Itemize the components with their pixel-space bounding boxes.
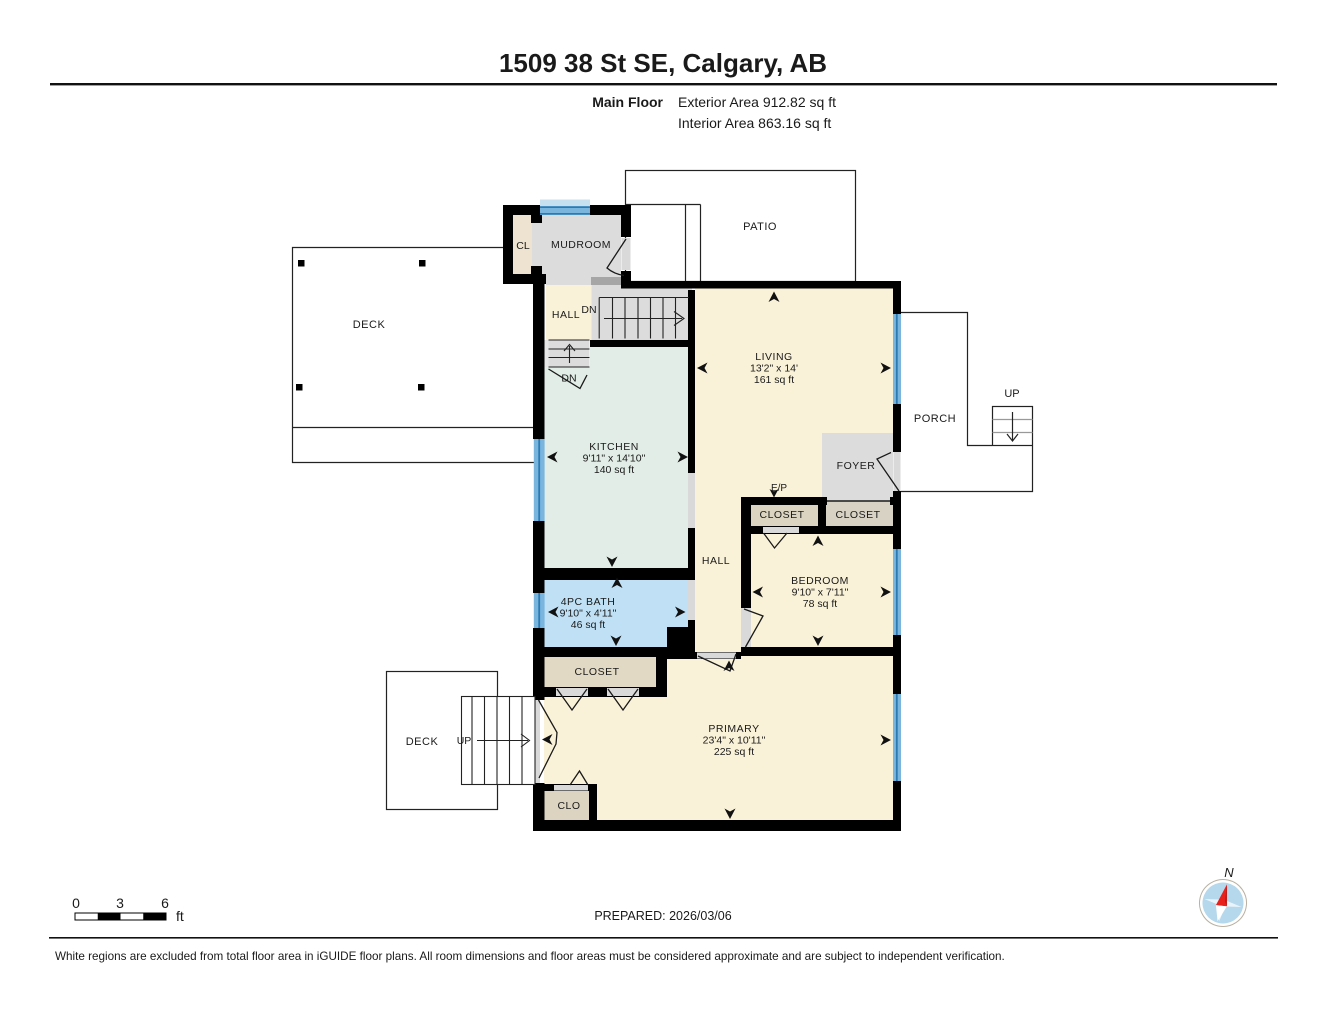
svg-text:140 sq ft: 140 sq ft (594, 464, 634, 476)
svg-text:FOYER: FOYER (837, 460, 876, 472)
svg-text:ft: ft (176, 908, 184, 924)
svg-text:DECK: DECK (353, 319, 386, 331)
svg-text:PRIMARY: PRIMARY (708, 723, 759, 735)
svg-text:Exterior Area 912.82 sq ft: Exterior Area 912.82 sq ft (678, 94, 836, 110)
svg-text:HALL: HALL (552, 309, 580, 321)
svg-text:Interior Area 863.16 sq ft: Interior Area 863.16 sq ft (678, 115, 831, 131)
svg-text:N: N (1224, 865, 1234, 880)
svg-text:LIVING: LIVING (755, 351, 792, 363)
svg-text:MUDROOM: MUDROOM (551, 239, 611, 251)
svg-text:CLO: CLO (557, 800, 580, 812)
svg-text:DECK: DECK (406, 736, 439, 748)
svg-text:PORCH: PORCH (914, 413, 956, 425)
svg-text:4PC BATH: 4PC BATH (561, 596, 616, 608)
svg-text:225 sq ft: 225 sq ft (714, 746, 754, 758)
svg-text:46 sq ft: 46 sq ft (571, 619, 606, 631)
svg-text:6: 6 (161, 895, 169, 911)
svg-text:CLOSET: CLOSET (574, 666, 619, 678)
svg-text:78 sq ft: 78 sq ft (803, 598, 838, 610)
svg-text:BEDROOM: BEDROOM (791, 575, 849, 587)
svg-text:3: 3 (116, 895, 124, 911)
svg-text:161 sq ft: 161 sq ft (754, 374, 794, 386)
svg-text:UP: UP (457, 735, 472, 747)
svg-text:9'11" x 14'10": 9'11" x 14'10" (583, 453, 646, 465)
svg-text:9'10" x 4'11": 9'10" x 4'11" (560, 608, 617, 620)
svg-text:White regions are excluded fro: White regions are excluded from total fl… (55, 950, 1005, 963)
svg-text:Main Floor: Main Floor (592, 94, 663, 110)
svg-text:CL: CL (516, 240, 530, 252)
svg-text:DN: DN (581, 304, 596, 316)
svg-text:13'2" x 14': 13'2" x 14' (750, 363, 798, 375)
svg-text:23'4" x 10'11": 23'4" x 10'11" (703, 735, 766, 747)
svg-text:PREPARED: 2026/03/06: PREPARED: 2026/03/06 (594, 909, 731, 923)
svg-text:PATIO: PATIO (743, 221, 777, 233)
svg-text:9'10" x 7'11": 9'10" x 7'11" (792, 587, 849, 599)
svg-text:CLOSET: CLOSET (835, 509, 880, 521)
svg-text:1509 38 St SE, Calgary, AB: 1509 38 St SE, Calgary, AB (499, 48, 827, 78)
svg-text:0: 0 (72, 895, 80, 911)
svg-text:UP: UP (1004, 388, 1019, 400)
svg-text:KITCHEN: KITCHEN (589, 441, 639, 453)
svg-text:DN: DN (561, 373, 576, 385)
svg-text:HALL: HALL (702, 555, 730, 567)
svg-text:E/P: E/P (771, 483, 787, 494)
svg-text:CLOSET: CLOSET (759, 509, 804, 521)
